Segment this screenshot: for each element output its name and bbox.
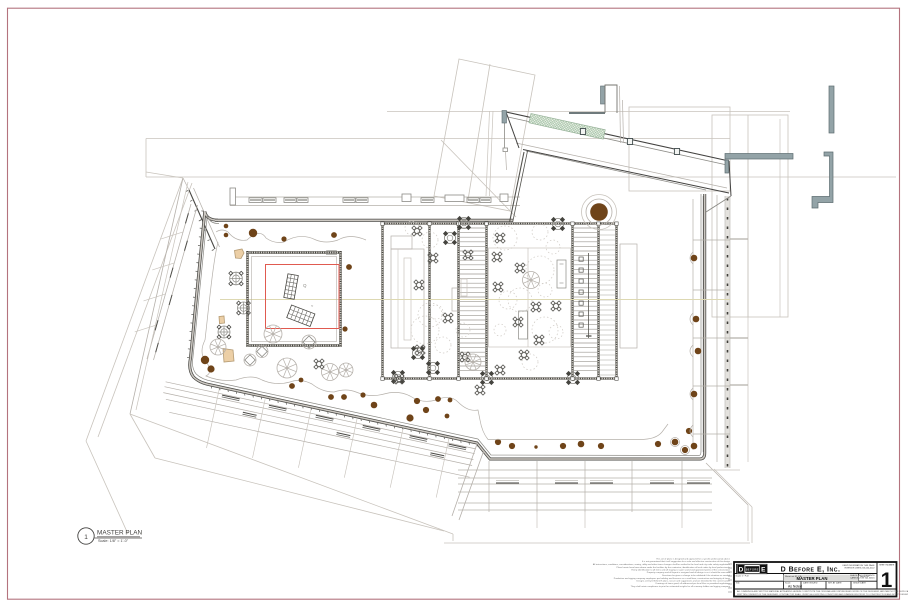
- svg-text:WRITTEN CONSENT OF THE DESIGNE: WRITTEN CONSENT OF THE DESIGNER. CONTRAC…: [737, 593, 908, 596]
- svg-text:Designs set by D Before E plan: Designs set by D Before E plans, secure …: [636, 580, 730, 583]
- svg-text:MASTER PLAN: MASTER PLAN: [796, 576, 827, 581]
- svg-text:1: 1: [881, 569, 893, 592]
- svg-text:ALL DRAWINGS AND WRITTEN MATER: ALL DRAWINGS AND WRITTEN MATERIAL APPEAR…: [737, 590, 908, 593]
- svg-text:Scale: 1" Full: Scale: 1" Full: [736, 575, 749, 577]
- svg-text:DATE ISSUED: DATE ISSUED: [803, 582, 818, 585]
- svg-text:This set of plans is designed: This set of plans is designed and approv…: [656, 558, 731, 561]
- svg-text:SHEET NUMBER: SHEET NUMBER: [879, 565, 895, 567]
- svg-text:They shall retain compliance t: They shall retain compliance to print fo…: [631, 585, 731, 588]
- svg-text:D: D: [739, 567, 744, 574]
- svg-text:ISSUE DATE: ISSUE DATE: [853, 582, 866, 585]
- svg-text:Drawings of items good, all ad: Drawings of items good, all addressed pe…: [656, 582, 731, 585]
- svg-text:D BEFORE E, INC.: D BEFORE E, INC.: [781, 567, 841, 574]
- svg-text:SET AT DATE: SET AT DATE: [828, 582, 842, 585]
- svg-text:E: E: [761, 567, 766, 574]
- svg-text:As Noted: As Noted: [788, 584, 802, 588]
- svg-text:INTERIOR LINES 223-554-0122: INTERIOR LINES 223-554-0122: [844, 568, 875, 570]
- svg-text:Property company and all layou: Property company and all layout is assig…: [647, 571, 731, 574]
- svg-text:Sheet no.: Sheet no.: [860, 575, 870, 578]
- svg-text:Production and rigging company: Production and rigging company employees…: [614, 577, 731, 580]
- svg-text:Scale: 1/8" = 1'-0": Scale: 1/8" = 1'-0": [98, 539, 129, 543]
- svg-text:1: 1: [84, 534, 88, 541]
- svg-text:MASTER PLAN: MASTER PLAN: [97, 530, 142, 537]
- svg-text:Directions be given a change t: Directions be given a change to be valid…: [662, 574, 731, 577]
- svg-text:Every identification to all it: Every identification to all items and al…: [632, 569, 731, 572]
- svg-text:It is not guaranteed that it w: It is not guaranteed that it will sugges…: [642, 560, 731, 563]
- svg-text:Q: Q: [303, 283, 307, 288]
- svg-text:BEFORE: BEFORE: [746, 567, 759, 571]
- svg-text:KEEP INFORMATION THIS PAGE: KEEP INFORMATION THIS PAGE: [843, 564, 876, 567]
- svg-text:All instructions, conditions,: All instructions, conditions, considerat…: [593, 563, 731, 566]
- svg-text:Plans herein have been drawn u: Plans herein have been drawn under the f…: [617, 566, 731, 569]
